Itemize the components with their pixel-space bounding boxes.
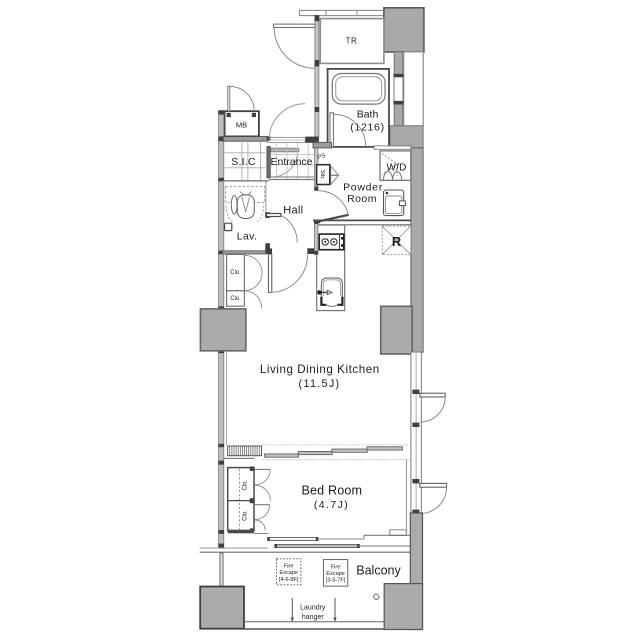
svg-text:Entrance: Entrance xyxy=(270,156,312,168)
svg-text:S.I.C: S.I.C xyxy=(231,156,256,168)
svg-text:TR: TR xyxy=(346,37,358,46)
svg-text:(11.5J): (11.5J) xyxy=(299,378,341,390)
svg-text:Escape: Escape xyxy=(326,571,345,577)
svg-text:W/D: W/D xyxy=(386,162,406,173)
svg-text:Lav.: Lav. xyxy=(237,231,257,243)
svg-text:Clo.: Clo. xyxy=(230,296,241,302)
svg-text:Room: Room xyxy=(347,193,377,205)
svg-text:(4.7J): (4.7J) xyxy=(314,499,349,511)
svg-text:Clo.: Clo. xyxy=(243,480,249,491)
svg-text:[4-6-8F]: [4-6-8F] xyxy=(279,577,299,583)
svg-text:Fire: Fire xyxy=(284,564,294,570)
svg-text:Stb.: Stb. xyxy=(319,170,325,180)
svg-text:R: R xyxy=(392,234,401,249)
svg-text:Bed Room: Bed Room xyxy=(301,483,362,497)
svg-text:Laundry: Laundry xyxy=(300,604,326,611)
svg-text:MB: MB xyxy=(236,121,247,130)
svg-text:Bath: Bath xyxy=(357,109,379,121)
svg-text:Clo.: Clo. xyxy=(230,270,241,276)
svg-text:Escape: Escape xyxy=(279,570,298,576)
svg-text:[3-5-7F]: [3-5-7F] xyxy=(326,578,346,584)
svg-text:Living Dining Kitchen: Living Dining Kitchen xyxy=(260,363,380,376)
svg-text:Balcony: Balcony xyxy=(356,564,401,578)
svg-text:Powder: Powder xyxy=(343,182,383,194)
svg-text:Fire: Fire xyxy=(331,564,341,570)
svg-text:Hall: Hall xyxy=(283,205,303,217)
svg-text:hanger: hanger xyxy=(302,614,324,621)
svg-text:Clo.: Clo. xyxy=(243,510,249,521)
